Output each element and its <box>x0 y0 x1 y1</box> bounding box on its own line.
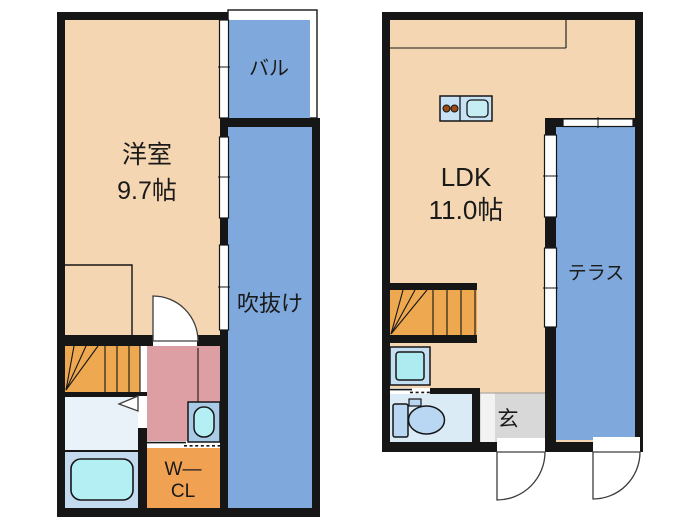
kitchen-sink <box>467 100 488 117</box>
bedroom-label: 洋室 <box>122 141 172 169</box>
windows-2f <box>218 20 230 330</box>
terrace-door-opening <box>593 437 640 452</box>
ldk-label: LDK <box>441 162 492 192</box>
entrance-door <box>497 452 545 500</box>
entrance-step <box>481 393 495 442</box>
kitchen-counter <box>440 96 492 121</box>
floor-plan-1f: LDK 11.0帖 テラス 玄 <box>382 12 643 500</box>
entrance-door-opening <box>497 438 545 452</box>
wash-basin-1f <box>390 347 430 385</box>
washroom-door-opening <box>138 396 147 428</box>
closet-label-line2: CL <box>171 481 195 502</box>
void-area <box>228 127 312 508</box>
floorplan-canvas: 洋室 9.7帖 バル 吹抜け W— CL <box>0 0 700 525</box>
burner-icon <box>443 105 450 112</box>
wash-basin-2f <box>188 402 220 442</box>
floor-plan-2f: 洋室 9.7帖 バル 吹抜け W— CL <box>57 10 320 517</box>
burner-icon <box>451 105 458 112</box>
bathtub <box>71 459 133 500</box>
terrace-door <box>593 452 640 499</box>
floor-plan-svg: 洋室 9.7帖 バル 吹抜け W— CL <box>0 0 700 525</box>
void-label: 吹抜け <box>237 291 303 316</box>
terrace-label: テラス <box>568 263 625 284</box>
ldk-size-label: 11.0帖 <box>429 195 504 225</box>
bedroom-size-label: 9.7帖 <box>117 177 177 205</box>
entrance-label: 玄 <box>498 408 519 431</box>
balcony-label: バル <box>249 58 289 80</box>
closet-label-line1: W— <box>165 459 202 480</box>
